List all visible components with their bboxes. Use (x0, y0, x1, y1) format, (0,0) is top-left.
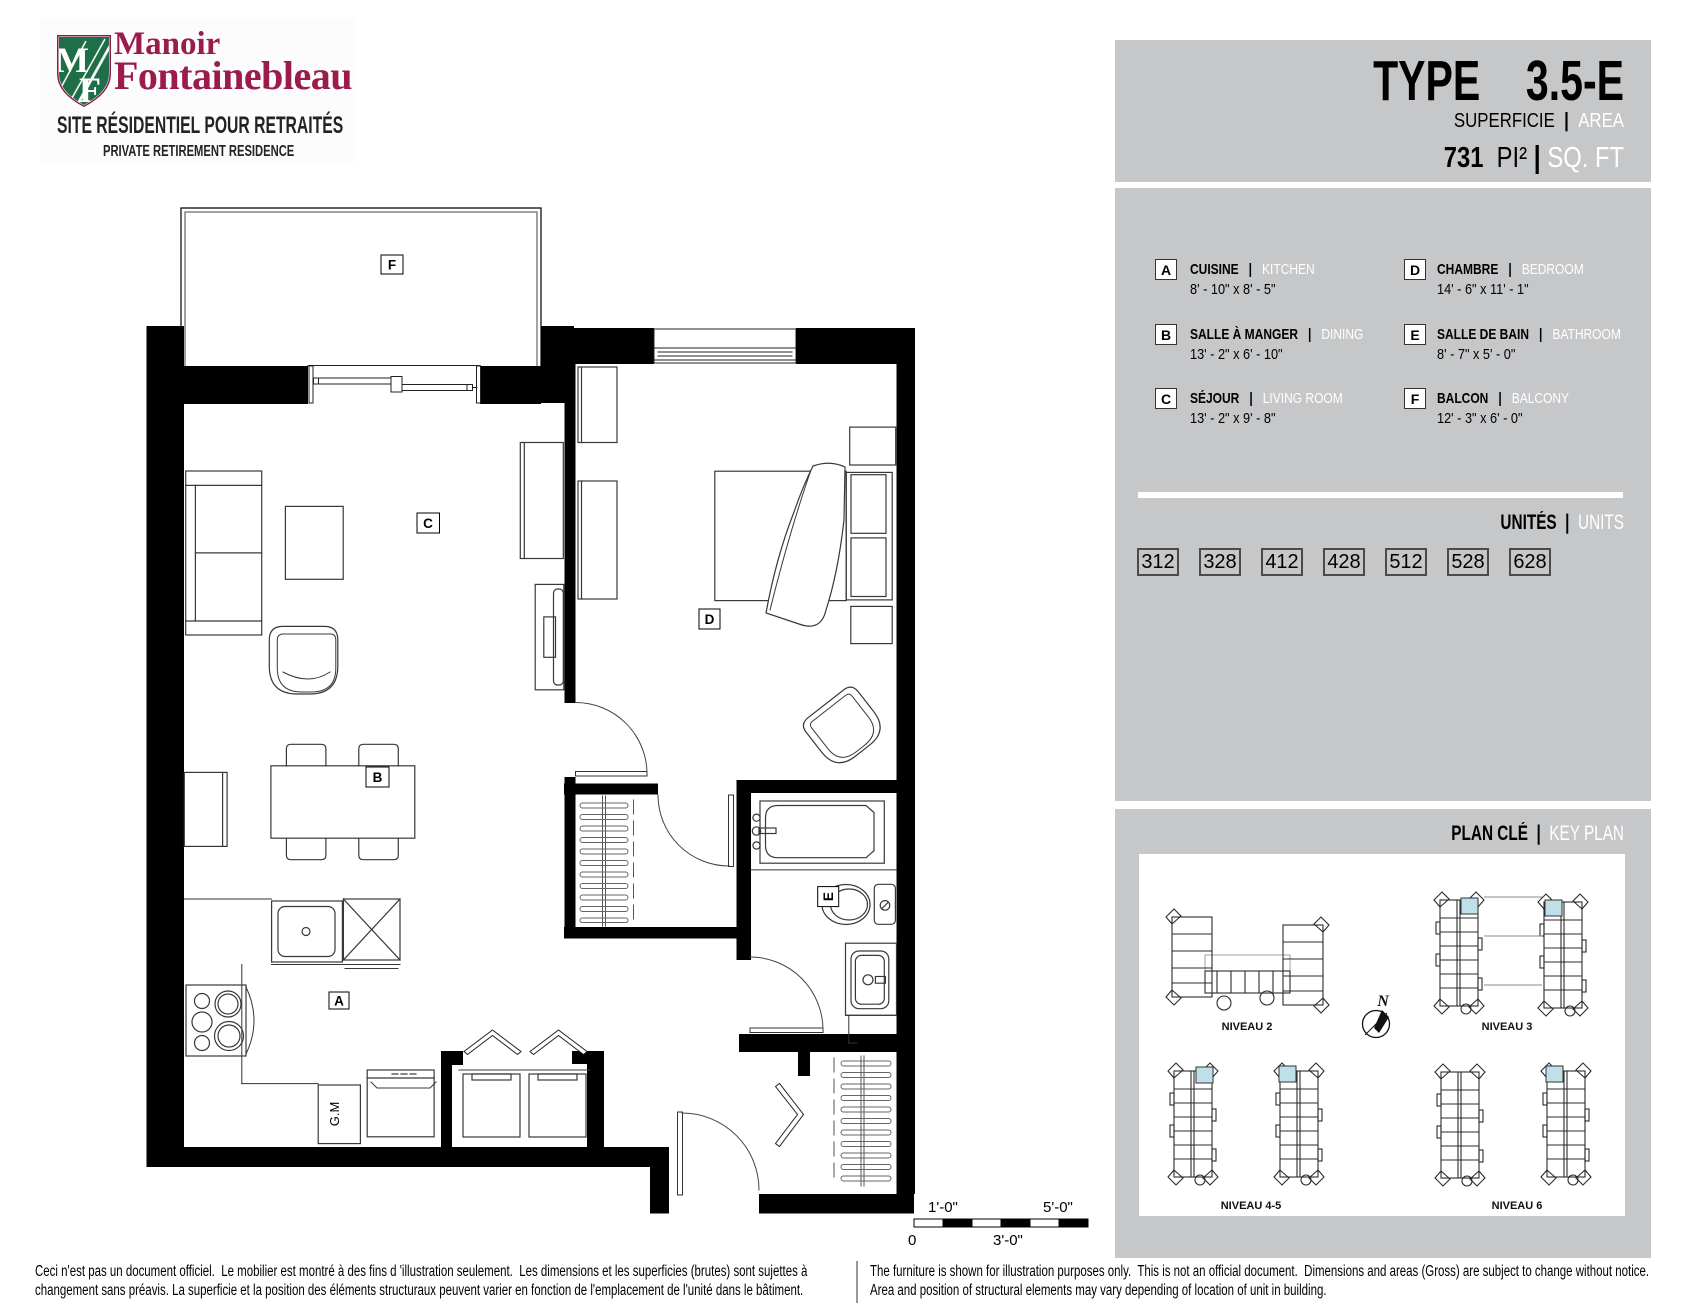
svg-text:NIVEAU 6: NIVEAU 6 (1492, 1200, 1543, 1212)
svg-text:0: 0 (908, 1232, 916, 1249)
svg-text:B: B (373, 770, 383, 785)
svg-text:G.M: G.M (327, 1102, 342, 1127)
svg-text:D: D (705, 612, 715, 627)
svg-text:NIVEAU 4-5: NIVEAU 4-5 (1221, 1200, 1282, 1212)
svg-text:N: N (1376, 993, 1390, 1010)
svg-text:1'-0": 1'-0" (928, 1199, 958, 1216)
svg-text:5'-0": 5'-0" (1043, 1199, 1073, 1216)
svg-text:F: F (388, 258, 396, 273)
svg-text:NIVEAU 2: NIVEAU 2 (1222, 1021, 1273, 1033)
svg-text:E: E (821, 892, 836, 901)
svg-text:3'-0": 3'-0" (993, 1232, 1023, 1249)
svg-text:C: C (423, 516, 433, 531)
svg-text:A: A (334, 994, 344, 1009)
svg-text:NIVEAU 3: NIVEAU 3 (1482, 1021, 1533, 1033)
